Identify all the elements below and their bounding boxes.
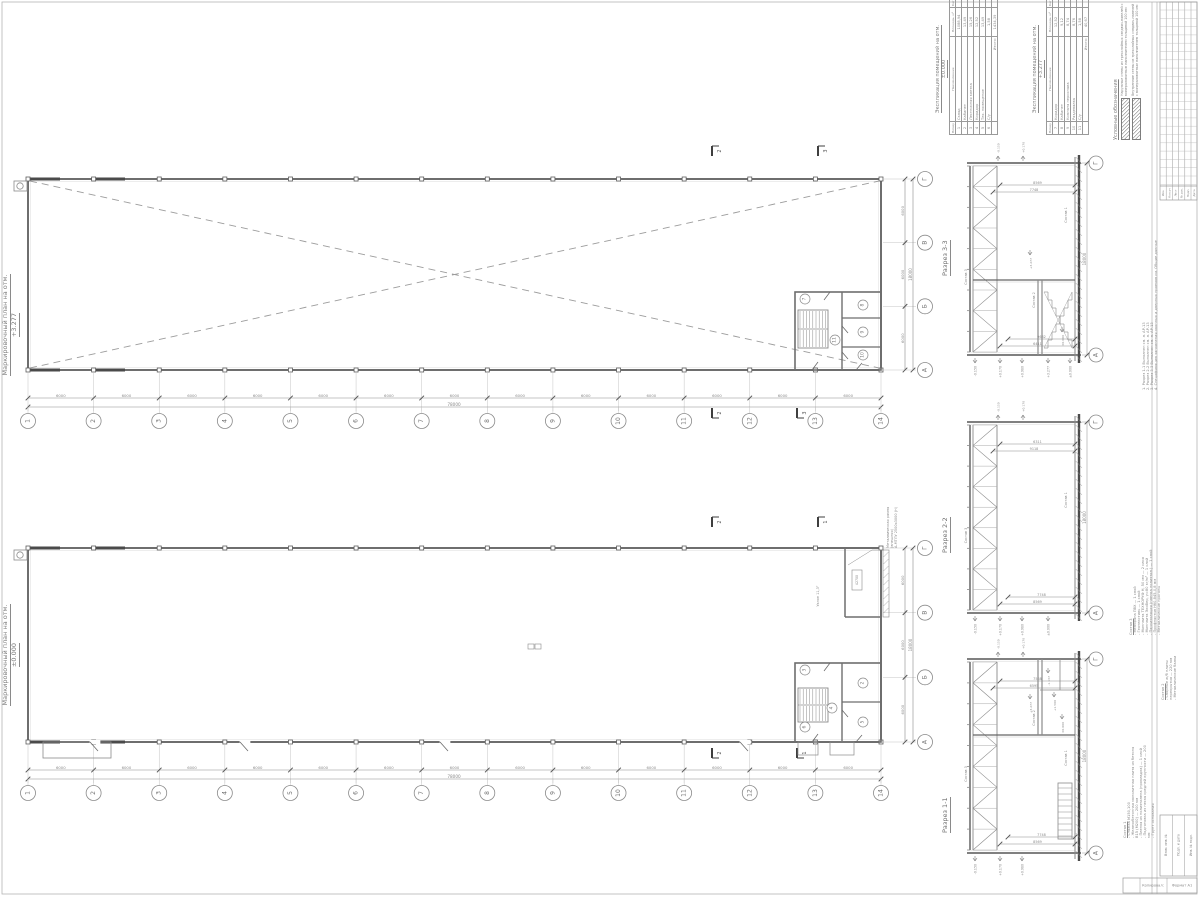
drawing-primitive: Состав 2	[1032, 292, 1036, 308]
drawing-primitive: 14	[877, 789, 884, 797]
drawing-primitive: -0.150	[974, 624, 978, 634]
drawing-primitive: 10	[615, 789, 622, 797]
drawing-primitive	[973, 331, 997, 352]
drawing-primitive	[617, 177, 621, 181]
drawing-primitive	[973, 829, 997, 850]
drawing-primitive: 8	[484, 419, 491, 423]
drawing-primitive: № док.	[1180, 188, 1184, 198]
drawing-primitive: -0.150	[997, 402, 1001, 412]
drawing-primitive: +0.170	[999, 624, 1003, 636]
drawing-primitive: +0.170	[1022, 638, 1026, 649]
drawing-primitive	[288, 177, 292, 181]
drawing-primitive	[973, 446, 997, 467]
drawing-primitive	[884, 580, 889, 585]
drawing-primitive	[157, 368, 161, 372]
drawing-primitive: 2	[717, 751, 723, 754]
drawing-primitive	[485, 177, 489, 181]
drawing-primitive	[223, 740, 227, 744]
drawing-primitive	[973, 787, 997, 808]
drawing-primitive: 6000	[253, 765, 263, 770]
drawing-primitive	[813, 177, 817, 181]
composition-1-block: Состав 1- Стяжка М150,100- Железобетонна…	[1124, 745, 1152, 838]
drawing-primitive: 2	[717, 149, 723, 152]
drawing-primitive: -0.150	[997, 143, 1001, 153]
plan-upper-title: Маркировочный план на отм. +3.277	[2, 230, 18, 420]
drawing-primitive: 10	[615, 417, 622, 425]
drawing-primitive	[157, 740, 161, 744]
drawing-primitive: 12	[746, 417, 753, 425]
drawing-primitive: +0.980	[1021, 366, 1025, 378]
drawing-primitive: 4	[221, 791, 228, 795]
drawing-primitive	[551, 177, 555, 181]
drawing-primitive: 6000	[843, 765, 853, 770]
drawing-primitive	[2, 2, 1197, 894]
drawing-primitive	[223, 546, 227, 550]
drawing-primitive: 3	[802, 668, 808, 671]
drawing-primitive: -0.150	[974, 864, 978, 874]
drawing-primitive	[813, 546, 817, 550]
drawing-primitive: 7	[418, 419, 425, 423]
drawing-primitive: 6000	[900, 575, 905, 585]
table-title: Экспликация помещений на отм.±0.000	[935, 3, 947, 135]
drawing-primitive: 6000	[900, 269, 905, 279]
drawing-primitive: Формат А1	[1172, 884, 1192, 888]
drawing-primitive	[1048, 618, 1050, 621]
drawing-primitive: Изм.	[1161, 190, 1165, 197]
drawing-primitive: 8569	[1033, 840, 1042, 844]
drawing-primitive: 7	[802, 297, 808, 300]
drawing-primitive: 6000	[56, 393, 66, 398]
drawing-node	[1083, 0, 1089, 8]
drawing-primitive: -1.137	[1047, 676, 1051, 686]
drawing-primitive	[682, 546, 686, 550]
composition-line: - Металлические балки	[1174, 642, 1178, 700]
drawing-primitive	[1062, 716, 1064, 719]
drawing-primitive	[856, 735, 862, 742]
drawing-primitive: 18000	[1082, 511, 1087, 524]
drawing-node: Итого:	[992, 37, 998, 122]
drawing-primitive: 6000	[515, 393, 525, 398]
drawing-primitive: 6000	[647, 765, 657, 770]
drawing-primitive	[884, 566, 889, 571]
drawing-primitive: ±0.000	[1069, 366, 1073, 378]
drawing-primitive	[682, 368, 686, 372]
legend-item: Наружные стены из трехслойных сэндвич-па…	[1121, 3, 1130, 140]
drawing-node	[992, 122, 998, 135]
drawing-primitive: +0.170	[1022, 142, 1026, 153]
drawing-primitive: 42700	[855, 575, 859, 585]
drawing-primitive	[420, 368, 424, 372]
drawing-primitive	[288, 546, 292, 550]
drawing-primitive: 6000	[450, 393, 460, 398]
drawing-node: Внутренние стены из трехслойных сэндвич-…	[1132, 3, 1139, 96]
drawing-primitive	[973, 704, 997, 725]
drawing-primitive: 1	[25, 419, 32, 423]
ramp-note: Металлическая рампа (внешняя) А-МТЛУ 250…	[886, 488, 902, 548]
drawing-primitive: 6	[353, 791, 360, 795]
drawing-node	[1083, 122, 1089, 135]
drawing-node: 1434,39	[992, 8, 998, 37]
drawing-primitive	[682, 177, 686, 181]
drawing-primitive: 12	[746, 789, 753, 797]
composition-2-block: Состав 2- Сборные ж/б плиты перекрытия —…	[1162, 642, 1178, 700]
drawing-primitive	[830, 742, 854, 755]
drawing-primitive: 7	[418, 791, 425, 795]
drawing-primitive	[354, 177, 358, 181]
drawing-primitive: 1	[823, 520, 829, 523]
drawing-primitive	[973, 466, 997, 487]
drawing-node	[992, 0, 998, 8]
drawing-primitive	[420, 740, 424, 744]
drawing-primitive	[223, 368, 227, 372]
drawing-primitive	[551, 546, 555, 550]
drawing-primitive: 18000	[1082, 252, 1087, 265]
drawing-primitive	[824, 292, 830, 300]
drawing-primitive: +0.170	[999, 366, 1003, 378]
drawing-primitive: 8	[860, 303, 866, 306]
drawing-primitive	[1054, 694, 1056, 697]
legend-item: Внутренние стены из трехслойных сэндвич-…	[1132, 3, 1141, 140]
drawing-primitive: 3	[156, 791, 163, 795]
drawing-primitive: 6000	[712, 393, 722, 398]
drawing-primitive: Б	[922, 304, 929, 308]
table-title: Экспликация помещений на отм.+3.277	[1032, 3, 1044, 135]
drawing-primitive: 18000	[908, 268, 913, 281]
drawing-primitive	[973, 808, 997, 829]
drawing-primitive: Г	[1093, 161, 1100, 165]
drawing-primitive	[1030, 696, 1032, 699]
drawing-primitive	[1058, 783, 1072, 839]
drawing-primitive: 1	[802, 751, 808, 754]
drawing-primitive: 5	[287, 419, 294, 423]
drawing-primitive	[43, 742, 111, 758]
drawing-primitive: 7748	[1037, 833, 1046, 837]
drawing-primitive: Копировал:	[1142, 884, 1164, 888]
schedule-table: Номер помещ.НаименованиеПлощадь, м²Кат. …	[949, 0, 998, 135]
drawing-primitive	[884, 573, 889, 578]
plan-lower-title-line2: ±0.000	[11, 643, 20, 667]
drawing-primitive: 7748	[1037, 593, 1046, 597]
drawing-primitive: ±0.000	[1061, 335, 1065, 346]
composition-line: - Металлические прогоны	[1158, 515, 1162, 635]
drawing-primitive: 11	[681, 417, 688, 425]
drawing-primitive	[1070, 360, 1072, 363]
drawing-primitive: 6	[353, 419, 360, 423]
drawing-node: +3.277	[1038, 60, 1045, 79]
drawing-sheet: 7891011232360006000600060006000600060006…	[0, 0, 1200, 900]
drawing-primitive: +3.277	[1047, 366, 1051, 378]
drawing-primitive	[748, 177, 752, 181]
drawing-primitive	[354, 546, 358, 550]
drawing-primitive	[223, 177, 227, 181]
drawing-primitive	[17, 183, 23, 189]
drawing-primitive: 2	[717, 411, 723, 414]
drawing-primitive	[1030, 252, 1032, 255]
drawing-primitive: 6000	[843, 393, 853, 398]
drawing-primitive: 6000	[122, 765, 132, 770]
drawing-primitive: 4	[829, 706, 835, 709]
drawing-primitive	[682, 740, 686, 744]
drawing-primitive: Кол.уч	[1167, 188, 1171, 198]
plan-lower-title: Маркировочный план на отм. ±0.000	[2, 560, 18, 750]
drawing-primitive	[879, 177, 883, 181]
drawing-primitive	[973, 528, 997, 549]
drawing-primitive: 18000	[1082, 749, 1087, 762]
drawing-primitive	[973, 487, 997, 508]
drawing-primitive	[973, 166, 997, 187]
drawing-primitive: 5	[860, 720, 866, 723]
drawing-primitive	[973, 425, 997, 446]
drawing-primitive: В	[922, 611, 929, 615]
drawing-primitive: +3.277	[1029, 258, 1033, 269]
drawing-primitive: 6000	[56, 765, 66, 770]
drawing-primitive	[973, 187, 997, 208]
drawing-primitive	[884, 594, 889, 599]
drawing-primitive: 6000	[318, 765, 328, 770]
drawing-primitive: 6000	[187, 393, 197, 398]
drawing-primitive: Состав 3	[964, 269, 968, 285]
drawing-primitive: 3	[823, 149, 829, 152]
drawing-primitive	[973, 207, 997, 228]
drawing-primitive: 10	[860, 352, 866, 358]
drawing-primitive: +0.170	[1022, 401, 1026, 412]
drawing-primitive: 6000	[712, 765, 722, 770]
drawing-primitive	[884, 601, 889, 606]
inner-wall-hatch-swatch	[1132, 98, 1141, 140]
drawing-primitive	[354, 740, 358, 744]
drawing-node: 40,67	[1083, 8, 1089, 37]
drawing-primitive: 78000	[447, 402, 461, 407]
drawing-primitive: Состав 1	[1064, 750, 1068, 766]
drawing-primitive: 11	[832, 337, 838, 343]
drawing-primitive	[973, 746, 997, 767]
composition-line: - Грунт основания	[1152, 745, 1156, 838]
drawing-primitive: 14	[877, 417, 884, 425]
drawing-primitive: Г	[922, 546, 929, 550]
drawing-primitive	[617, 368, 621, 372]
drawing-node: Разрез 3-3	[941, 240, 951, 276]
drawing-primitive: 6000	[900, 333, 905, 343]
drawing-primitive	[884, 587, 889, 592]
drawing-primitive	[973, 228, 997, 249]
drawing-primitive	[92, 177, 96, 181]
drawing-primitive: 4	[221, 419, 228, 423]
note-line: 4. Спецификацию заполнения оконных и две…	[1155, 240, 1159, 390]
drawing-primitive: 6000	[778, 765, 788, 770]
drawing-primitive: 6000	[253, 393, 263, 398]
drawing-primitive	[973, 766, 997, 787]
drawing-primitive: 2	[717, 520, 723, 523]
drawing-primitive	[28, 548, 881, 742]
drawing-primitive: 9	[549, 791, 556, 795]
drawing-primitive: -0.150	[997, 639, 1001, 649]
drawing-primitive	[973, 249, 997, 270]
outer-wall-hatch-swatch	[1121, 98, 1130, 140]
drawing-primitive	[26, 740, 30, 744]
drawing-primitive: Состав 3	[964, 528, 968, 544]
drawing-primitive: 6000	[778, 393, 788, 398]
drawing-primitive: Взам. инв. №	[1164, 834, 1168, 856]
drawing-primitive: +0.980	[1021, 624, 1025, 636]
drawing-primitive: 78000	[447, 774, 461, 779]
drawing-primitive: 6000	[318, 393, 328, 398]
drawing-primitive: 6311	[1033, 440, 1042, 444]
drawing-primitive	[973, 548, 997, 569]
notes-block: 1. Разрез 1-1 Выполнен см. л. АР-132. Ра…	[1143, 240, 1163, 390]
drawing-primitive	[848, 550, 872, 565]
drawing-primitive: 18000	[908, 638, 913, 651]
drawing-primitive	[884, 608, 889, 613]
drawing-primitive: 9118	[1030, 447, 1039, 451]
drawing-primitive: 6000	[900, 704, 905, 714]
drawing-primitive	[879, 546, 883, 550]
drawing-primitive	[157, 546, 161, 550]
drawing-primitive: Уклон 11,3°	[816, 585, 820, 606]
drawing-primitive	[17, 552, 23, 558]
drawing-primitive	[551, 740, 555, 744]
drawing-primitive	[420, 177, 424, 181]
drawing-primitive: 9	[549, 419, 556, 423]
drawing-primitive	[485, 740, 489, 744]
drawing-primitive: Б	[922, 675, 929, 679]
drawing-primitive: 2	[90, 791, 97, 795]
drawing-primitive	[26, 546, 30, 550]
drawing-primitive	[485, 546, 489, 550]
drawing-primitive	[973, 662, 997, 683]
drawing-primitive: +3.277	[1029, 702, 1033, 713]
drawing-primitive	[973, 589, 997, 610]
drawing-primitive: 7748	[1030, 188, 1039, 192]
drawing-primitive	[157, 177, 161, 181]
room-schedule-table-level1: Экспликация помещений на отм.+3.277Номер…	[1032, 3, 1112, 135]
drawing-primitive	[973, 569, 997, 590]
drawing-primitive: Г	[1093, 420, 1100, 424]
drawing-primitive: 6000	[450, 765, 460, 770]
drawing-primitive: 2	[860, 681, 866, 684]
drawing-primitive: Г	[1093, 657, 1100, 661]
drawing-primitive: В	[922, 241, 929, 245]
drawing-primitive	[26, 177, 30, 181]
drawing-primitive: 6000	[900, 640, 905, 650]
drawing-primitive	[1048, 670, 1050, 673]
drawing-primitive	[617, 546, 621, 550]
composition-3-block: Состав 3- Мембрана ПВХ — 1 слой- Геотекс…	[1130, 515, 1160, 635]
drawing-primitive: 13	[812, 789, 819, 797]
drawing-primitive: 11	[681, 789, 688, 797]
drawing-primitive: 6000	[647, 393, 657, 398]
drawing-primitive	[884, 552, 889, 557]
drawing-primitive: 6000	[384, 393, 394, 398]
drawing-primitive: 6000	[187, 765, 197, 770]
table-total-row: Итого:40,67	[1083, 0, 1089, 135]
drawing-primitive: 8569	[1033, 181, 1042, 185]
drawing-primitive: Состав 1	[1064, 492, 1068, 508]
legend-block: Условные обозначенияНаружные стены из тр…	[1113, 3, 1160, 140]
drawing-primitive	[92, 546, 96, 550]
drawing-primitive: ±0.000	[1047, 624, 1051, 636]
drawing-primitive	[92, 368, 96, 372]
drawing-primitive: 1	[25, 791, 32, 795]
drawing-primitive	[31, 551, 879, 740]
drawing-primitive: 8	[484, 791, 491, 795]
drawing-primitive: -0.150	[974, 366, 978, 376]
drawing-primitive: 6000	[122, 393, 132, 398]
drawing-primitive	[528, 644, 534, 649]
section-1-1-label: Разрез 1-1	[941, 778, 953, 833]
drawing-primitive	[748, 368, 752, 372]
drawing-primitive	[973, 290, 997, 311]
drawing-primitive	[617, 740, 621, 744]
drawing-primitive: 6000	[900, 205, 905, 215]
drawing-primitive: +1.500	[1053, 700, 1057, 711]
drawing-primitive	[551, 368, 555, 372]
drawing-primitive	[748, 546, 752, 550]
drawing-node: Наружные стены из трехслойных сэндвич-па…	[1121, 3, 1128, 96]
plan-upper-title-line2: +3.277	[11, 313, 20, 337]
drawing-primitive: Г	[922, 177, 929, 181]
drawing-primitive	[288, 740, 292, 744]
drawing-primitive: 9	[860, 330, 866, 333]
drawing-primitive: +0.980	[1021, 864, 1025, 876]
drawing-primitive: Инв. № подл.	[1189, 834, 1193, 856]
drawing-primitive: 8569	[1033, 600, 1042, 604]
drawing-primitive	[842, 710, 848, 717]
drawing-primitive: +0.170	[999, 864, 1003, 876]
drawing-primitive: Состав 1	[1064, 207, 1068, 223]
drawing-primitive	[354, 368, 358, 372]
drawing-primitive	[883, 550, 889, 617]
drawing-primitive: 6	[802, 725, 808, 728]
room-schedule-table-level0: Экспликация помещений на отм.±0.000Номер…	[935, 3, 1030, 135]
drawing-primitive	[288, 368, 292, 372]
drawing-primitive: 6595	[1030, 684, 1039, 688]
drawing-primitive: 6000	[581, 765, 591, 770]
drawing-primitive	[884, 559, 889, 564]
drawing-primitive	[842, 326, 848, 333]
drawing-node: ±0.000	[941, 60, 948, 79]
drawing-primitive: 13	[812, 417, 819, 425]
drawing-primitive: Лист	[1174, 189, 1178, 196]
drawing-primitive	[485, 368, 489, 372]
drawing-primitive	[26, 368, 30, 372]
drawing-primitive: Состав 3	[964, 766, 968, 782]
drawing-node: Разрез 1-1	[941, 797, 951, 833]
drawing-node: Разрез 2-2	[941, 517, 951, 553]
drawing-primitive: Подп. и дата	[1176, 834, 1180, 856]
drawing-primitive: 3	[156, 419, 163, 423]
drawing-primitive: 6000	[515, 765, 525, 770]
schedule-table: Номер помещ.НаименованиеПлощадь, м²Кат. …	[1046, 0, 1089, 135]
drawing-primitive: 2	[90, 419, 97, 423]
linework-layer: 7891011232360006000600060006000600060006…	[0, 0, 1200, 900]
drawing-primitive	[842, 352, 848, 359]
drawing-primitive	[973, 311, 997, 332]
drawing-primitive	[824, 663, 830, 671]
drawing-node: Металлическая рампа (внешняя)	[886, 507, 894, 548]
drawing-primitive	[1048, 360, 1050, 363]
drawing-node: А-МТЛУ 2500х3000 (Н)	[894, 507, 898, 548]
drawing-primitive	[856, 363, 862, 370]
drawing-primitive: 6000	[384, 765, 394, 770]
drawing-primitive: ±0.000	[1061, 722, 1065, 733]
drawing-primitive	[973, 683, 997, 704]
drawing-primitive	[420, 546, 424, 550]
legend-title: Условные обозначения	[1113, 3, 1119, 140]
drawing-primitive	[535, 644, 541, 649]
table-total-row: Итого:1434,39	[992, 0, 998, 135]
section-2-2-label: Разрез 2-2	[941, 498, 953, 553]
drawing-primitive: 5	[287, 791, 294, 795]
